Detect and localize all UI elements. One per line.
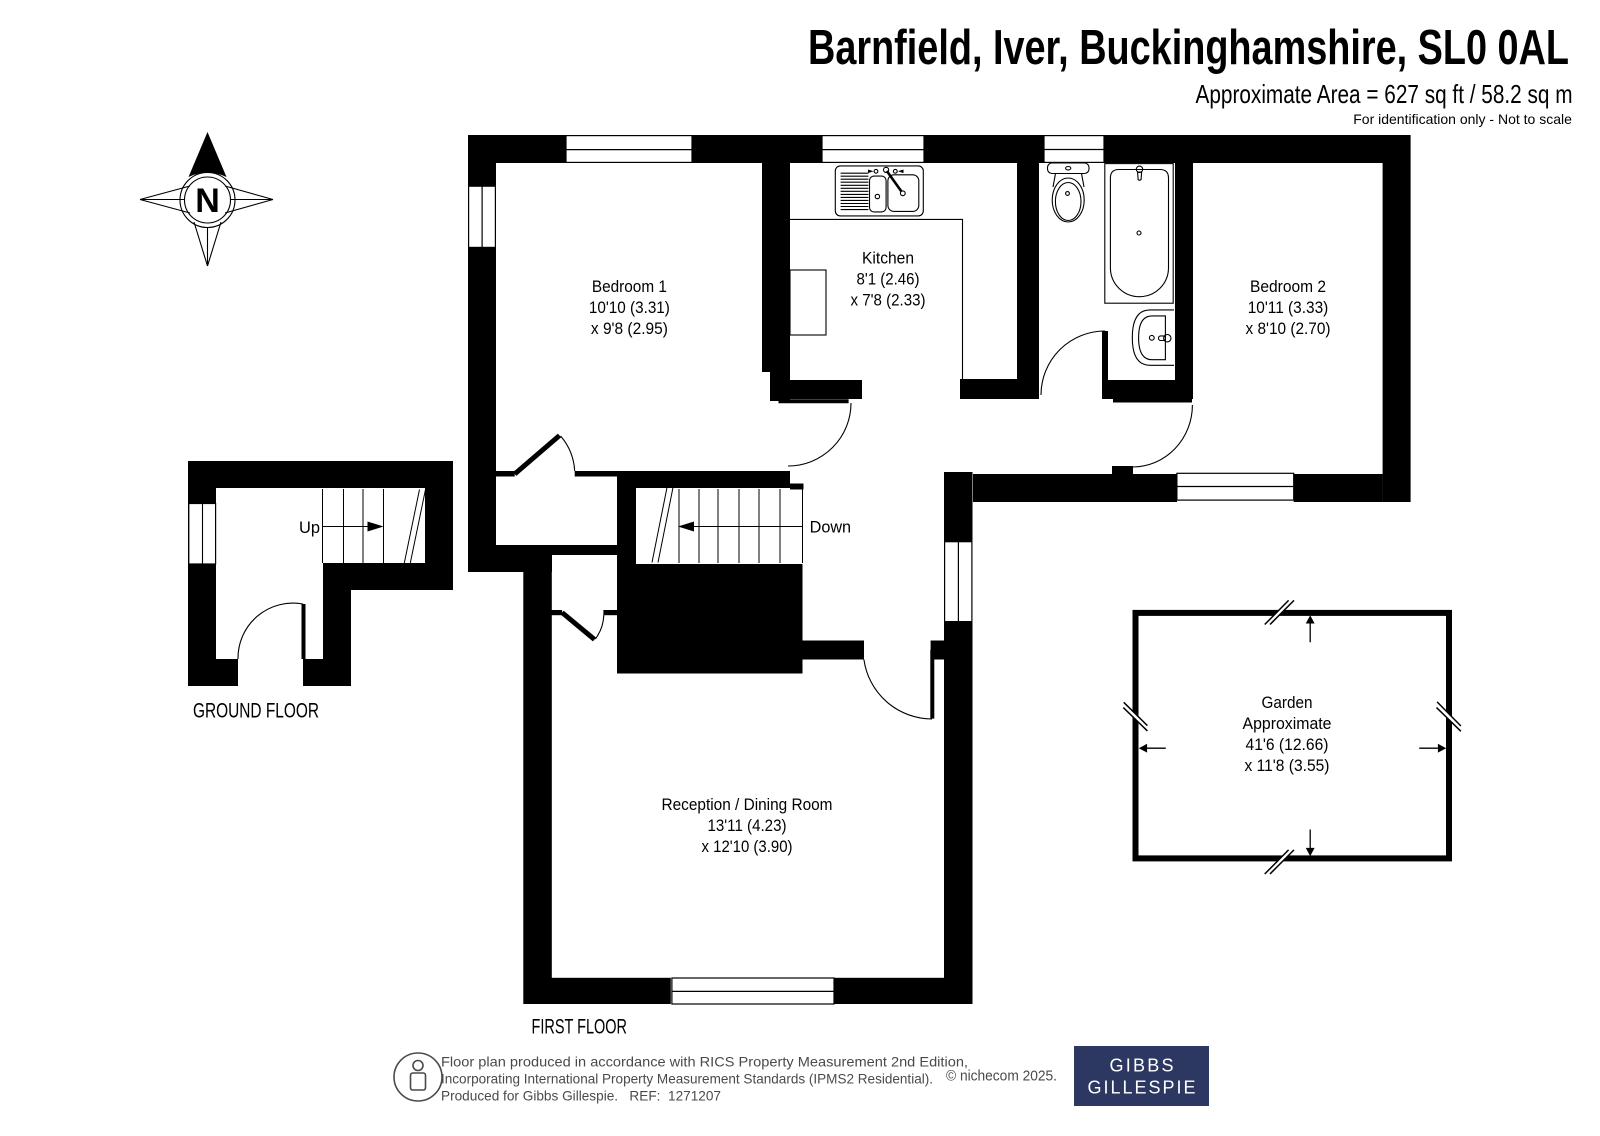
svg-text:Approximate Area = 627 sq ft /: Approximate Area = 627 sq ft / 58.2 sq m (1196, 79, 1573, 109)
svg-text:8'1 (2.46): 8'1 (2.46) (857, 270, 920, 289)
svg-text:FIRST FLOOR: FIRST FLOOR (532, 1015, 628, 1039)
svg-text:Kitchen: Kitchen (862, 249, 914, 268)
svg-text:10'11 (3.33): 10'11 (3.33) (1248, 298, 1329, 317)
svg-text:Garden: Garden (1262, 693, 1313, 712)
svg-text:Approximate: Approximate (1243, 714, 1332, 733)
svg-text:x 11'8 (3.55): x 11'8 (3.55) (1245, 756, 1330, 775)
svg-text:x 8'10 (2.70): x 8'10 (2.70) (1246, 319, 1331, 338)
svg-text:GILLESPIE: GILLESPIE (1088, 1078, 1196, 1098)
svg-text:N: N (195, 182, 220, 220)
svg-text:For identification only - Not: For identification only - Not to scale (1353, 111, 1572, 127)
svg-text:Floor plan produced in accorda: Floor plan produced in accordance with R… (441, 1054, 968, 1070)
svg-text:Barnfield, Iver, Buckinghamshi: Barnfield, Iver, Buckinghamshire, SL0 0A… (808, 21, 1569, 75)
svg-text:x 7'8 (2.33): x 7'8 (2.33) (851, 291, 926, 310)
svg-text:Bedroom 2: Bedroom 2 (1250, 277, 1326, 296)
svg-text:© nichecom 2025.: © nichecom 2025. (946, 1068, 1057, 1085)
svg-text:13'11 (4.23): 13'11 (4.23) (708, 816, 787, 835)
svg-text:GROUND FLOOR: GROUND FLOOR (193, 699, 319, 723)
svg-text:10'10 (3.31): 10'10 (3.31) (589, 298, 670, 317)
svg-text:GIBBS: GIBBS (1110, 1056, 1174, 1076)
svg-text:Bedroom 1: Bedroom 1 (592, 277, 667, 296)
svg-text:x 12'10 (3.90): x 12'10 (3.90) (702, 837, 793, 856)
svg-text:Reception / Dining Room: Reception / Dining Room (662, 795, 833, 814)
svg-text:Down: Down (810, 518, 852, 537)
svg-text:Produced for Gibbs Gillespie.: Produced for Gibbs Gillespie. REF: 12712… (441, 1088, 721, 1104)
svg-text:x 9'8 (2.95): x 9'8 (2.95) (591, 319, 668, 338)
svg-text:Up: Up (299, 518, 320, 537)
svg-text:41'6 (12.66): 41'6 (12.66) (1246, 735, 1329, 754)
svg-text:Incorporating International Pr: Incorporating International Property Mea… (441, 1071, 933, 1087)
